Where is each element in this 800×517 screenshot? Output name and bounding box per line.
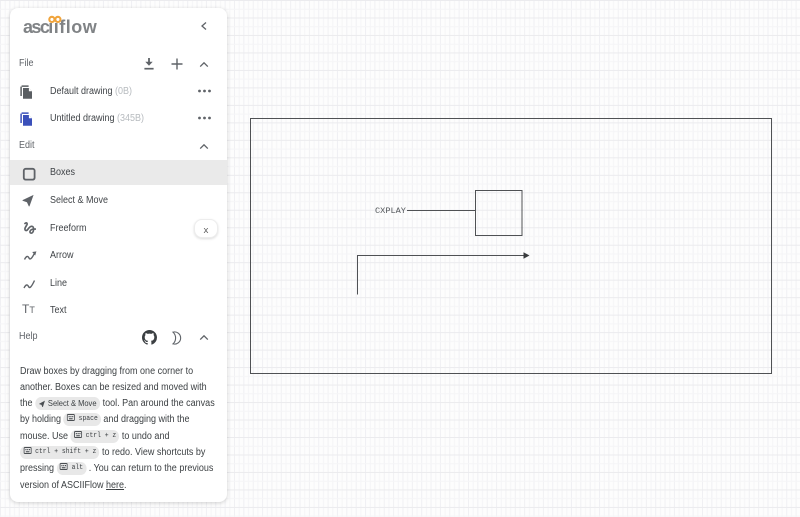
svg-text:CXPLAY: CXPLAY [375, 206, 406, 216]
